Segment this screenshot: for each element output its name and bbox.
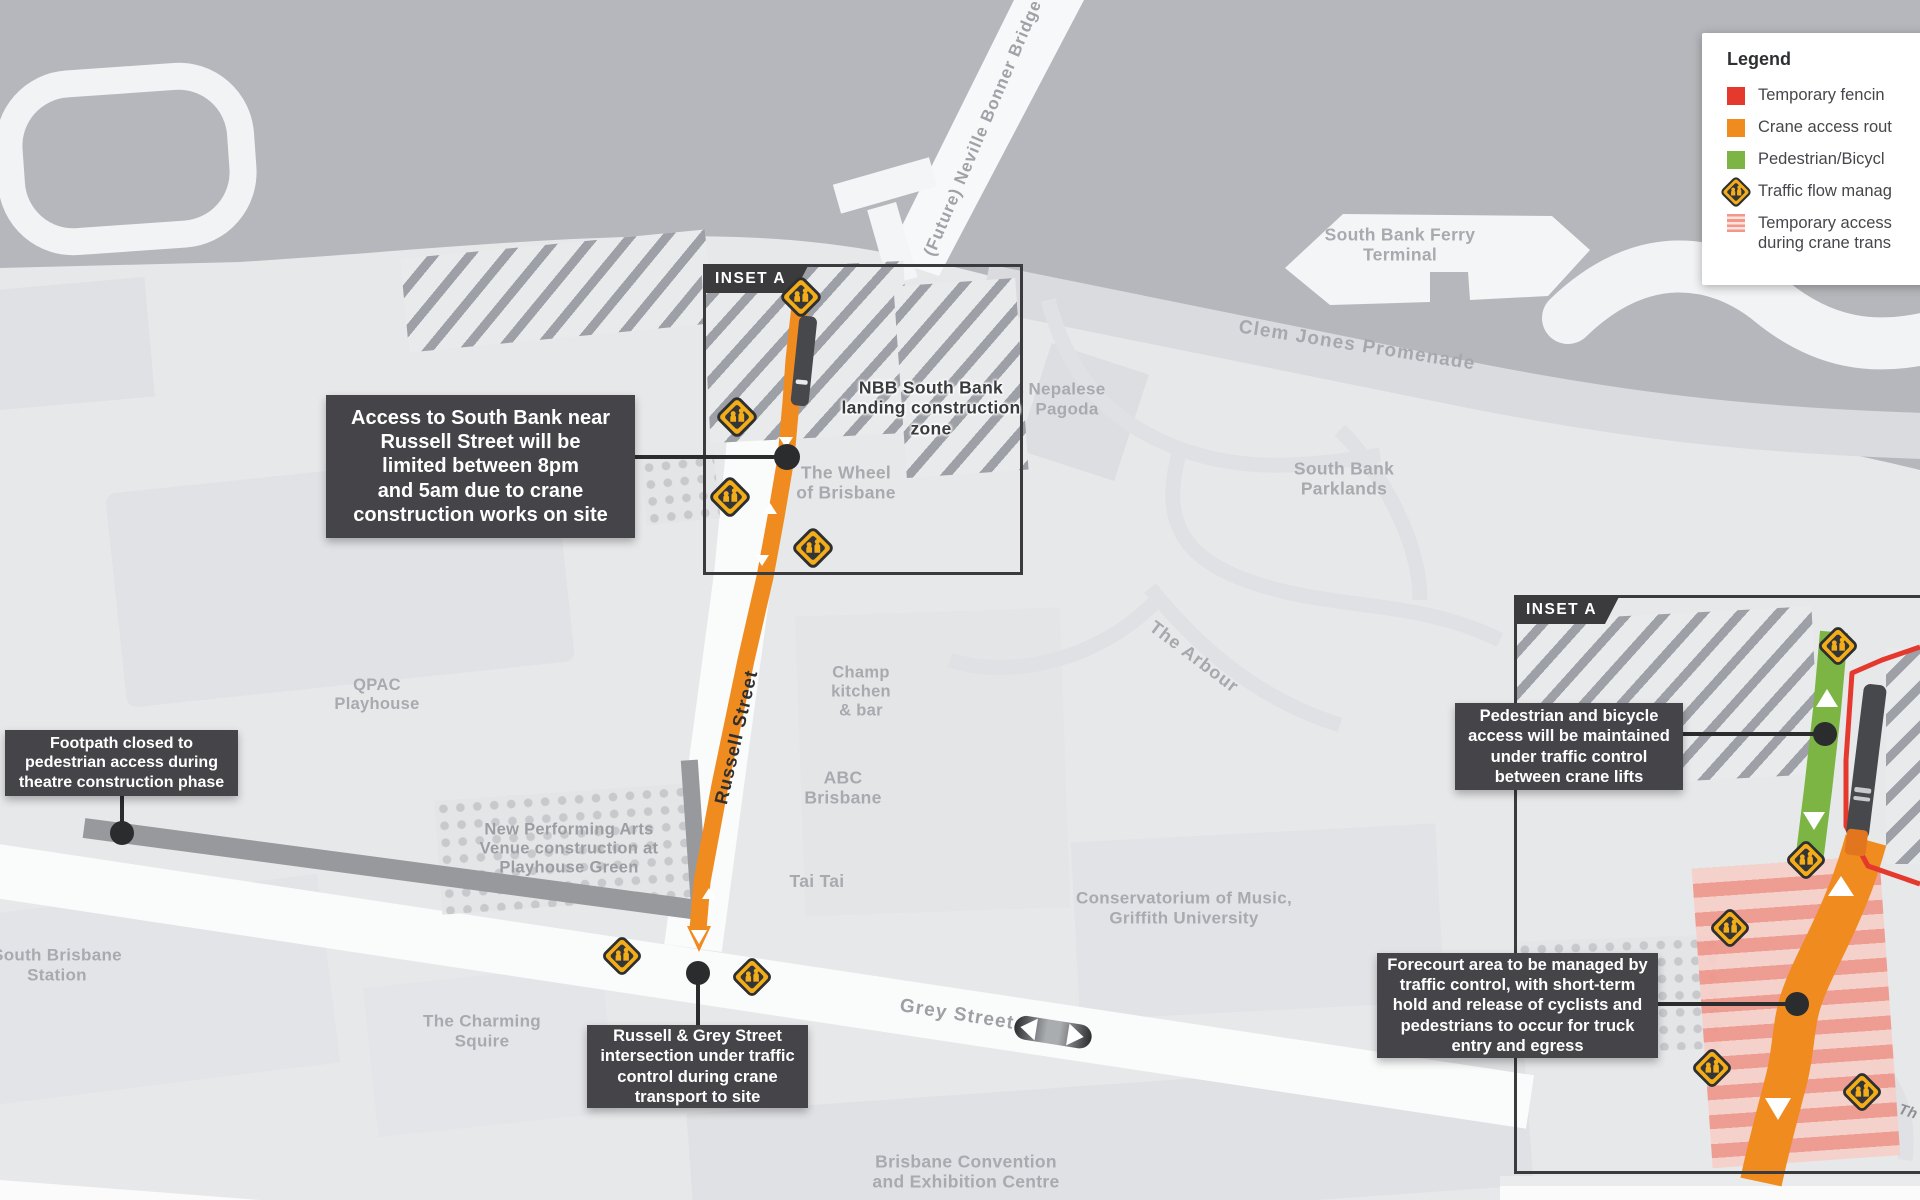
label-nbb-zone: NBB South Banklanding constructionzone xyxy=(841,378,1020,439)
legend-item-label: Crane access rout xyxy=(1758,118,1892,138)
legend-item-label: Traffic flow manag xyxy=(1758,182,1892,202)
traffic-management-icon xyxy=(1784,838,1828,882)
traffic-management-icon xyxy=(714,394,760,440)
red-swatch xyxy=(1727,87,1745,105)
traffic-management-icon xyxy=(600,934,644,978)
label-south-bank-parklands: South BankParklands xyxy=(1294,459,1394,500)
pink-stripe-swatch xyxy=(1727,214,1745,232)
label-ferry-terminal: South Bank FerryTerminal xyxy=(1325,225,1476,266)
label-conservatorium: Conservatorium of Music,Griffith Univers… xyxy=(1076,888,1292,927)
green-swatch xyxy=(1727,151,1745,169)
legend-item-pedestrian-bicycle: Pedestrian/Bicycl xyxy=(1727,150,1920,169)
callout-forecourt: Forecourt area to be managed bytraffic c… xyxy=(1377,953,1658,1058)
legend-item-crane-access-route: Crane access rout xyxy=(1727,118,1920,137)
label-convention-centre: Brisbane Conventionand Exhibition Centre xyxy=(872,1152,1059,1193)
label-qpac-playhouse: QPACPlayhouse xyxy=(334,676,419,714)
label-champ-kitchen: Champkitchen& bar xyxy=(831,663,891,720)
callout-pedestrian: Pedestrian and bicycleaccess will be mai… xyxy=(1455,703,1683,790)
callout-footpath: Footpath closed topedestrian access duri… xyxy=(5,730,238,796)
legend-panel: Legend Temporary fencin Crane access rou… xyxy=(1702,33,1920,285)
legend-item-traffic-flow: Traffic flow manag xyxy=(1727,182,1920,201)
legend-item-label: Pedestrian/Bicycl xyxy=(1758,150,1885,170)
traffic-management-icon xyxy=(1708,906,1752,950)
legend-item-temporary-fencing: Temporary fencin xyxy=(1727,86,1920,105)
label-wheel-of-brisbane: The Wheelof Brisbane xyxy=(796,463,896,504)
traffic-management-icon xyxy=(1816,624,1860,668)
orange-swatch xyxy=(1727,119,1745,137)
traffic-management-icon xyxy=(1840,1070,1884,1114)
traffic-management-icon xyxy=(1727,183,1745,201)
traffic-management-icon xyxy=(778,274,824,320)
traffic-management-icon xyxy=(730,955,774,999)
label-nepalese-pagoda: NepalesePagoda xyxy=(1028,379,1105,418)
label-charming-squire: The CharmingSquire xyxy=(423,1011,541,1050)
legend-item-label: Temporary fencin xyxy=(1758,86,1885,106)
traffic-management-map: INSET A INSET A xyxy=(0,0,1920,1200)
traffic-management-icon xyxy=(1690,1046,1734,1090)
legend-title: Legend xyxy=(1727,49,1920,70)
label-tai-tai: Tai Tai xyxy=(790,871,845,891)
label-abc-brisbane: ABCBrisbane xyxy=(804,768,881,809)
traffic-management-icon xyxy=(790,525,836,571)
traffic-management-icon xyxy=(707,474,753,520)
callout-intersection: Russell & Grey Streetintersection under … xyxy=(587,1025,808,1108)
label-new-performing-arts: New Performing ArtsVenue construction at… xyxy=(480,820,659,877)
callout-access: Access to South Bank nearRussell Street … xyxy=(326,395,635,538)
legend-item-temporary-access: Temporary accessduring crane trans xyxy=(1727,214,1920,254)
legend-item-label: Temporary accessduring crane trans xyxy=(1758,214,1892,254)
label-south-brisbane-station: South BrisbaneStation xyxy=(0,945,122,984)
